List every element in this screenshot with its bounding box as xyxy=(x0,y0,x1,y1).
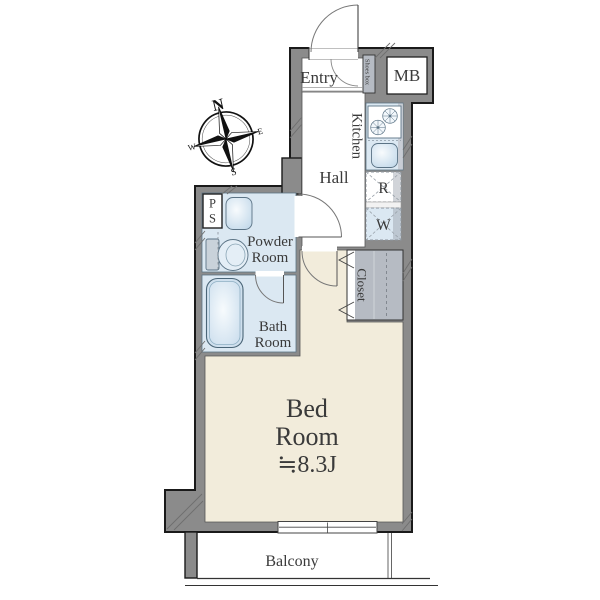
rw-divider xyxy=(366,202,401,208)
balcony-window xyxy=(278,522,377,534)
meter-box-label: MB xyxy=(394,66,420,85)
hall-label: Hall xyxy=(319,168,349,187)
entry-label: Entry xyxy=(300,68,338,87)
powder-sink-icon xyxy=(226,198,252,230)
compass-east-label: E xyxy=(256,126,263,137)
bath-room-label-1: Bath xyxy=(259,319,288,335)
compass: N E W S xyxy=(178,89,271,187)
closet-label: Closet xyxy=(355,268,370,302)
balcony-side-wall xyxy=(185,532,197,578)
shoes-box-label: Shoes box xyxy=(364,59,371,86)
refrigerator-label: R xyxy=(378,180,389,197)
closet xyxy=(339,250,403,320)
bedroom-size-label: ≒8.3J xyxy=(277,452,336,478)
floorplan-canvas: N E W S Entry Shoes box MB Kitchen Hall … xyxy=(0,0,600,600)
compass-west-label: W xyxy=(187,141,197,153)
bath-room-label-2: Room xyxy=(255,335,292,351)
balcony-label: Balcony xyxy=(265,553,318,570)
stove-icon xyxy=(368,106,401,141)
kitchen-sink-icon xyxy=(372,144,398,168)
pipe-space-label-s: S xyxy=(209,212,216,226)
powder-room-label-1: Powder xyxy=(247,234,293,250)
floorplan: N E W S Entry Shoes box MB Kitchen Hall … xyxy=(0,0,600,600)
powder-room-label-2: Room xyxy=(252,250,289,266)
wall-protrusion xyxy=(282,158,302,194)
kitchen-label: Kitchen xyxy=(349,113,365,160)
pipe-space-label-p: P xyxy=(209,197,216,211)
entry-door-arc xyxy=(311,5,358,52)
bathtub-icon xyxy=(207,279,244,348)
bedroom-label-1: Bed xyxy=(286,394,328,423)
washer-label: W xyxy=(376,217,391,234)
compass-south-label: S xyxy=(230,167,238,179)
bedroom-label-2: Room xyxy=(275,422,339,451)
compass-north-label: N xyxy=(211,96,227,115)
